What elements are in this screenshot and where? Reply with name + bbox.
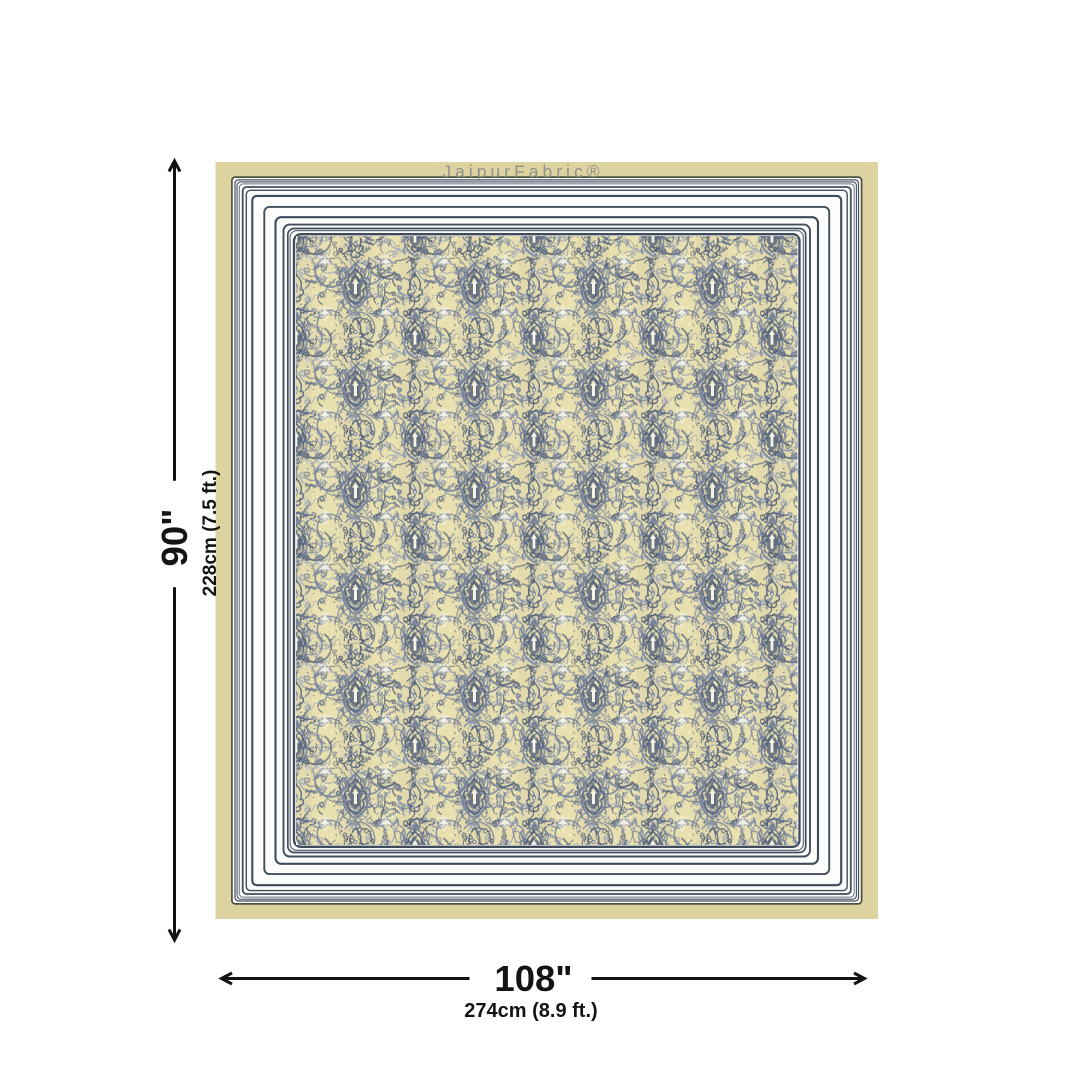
svg-text:90": 90" <box>154 509 195 567</box>
svg-text:274cm (8.9 ft.): 274cm (8.9 ft.) <box>464 1000 597 1022</box>
svg-text:228cm (7.5 ft.): 228cm (7.5 ft.) <box>200 470 221 597</box>
svg-text:108": 108" <box>494 958 572 999</box>
svg-text:JaipurFabric®: JaipurFabric® <box>442 161 603 181</box>
